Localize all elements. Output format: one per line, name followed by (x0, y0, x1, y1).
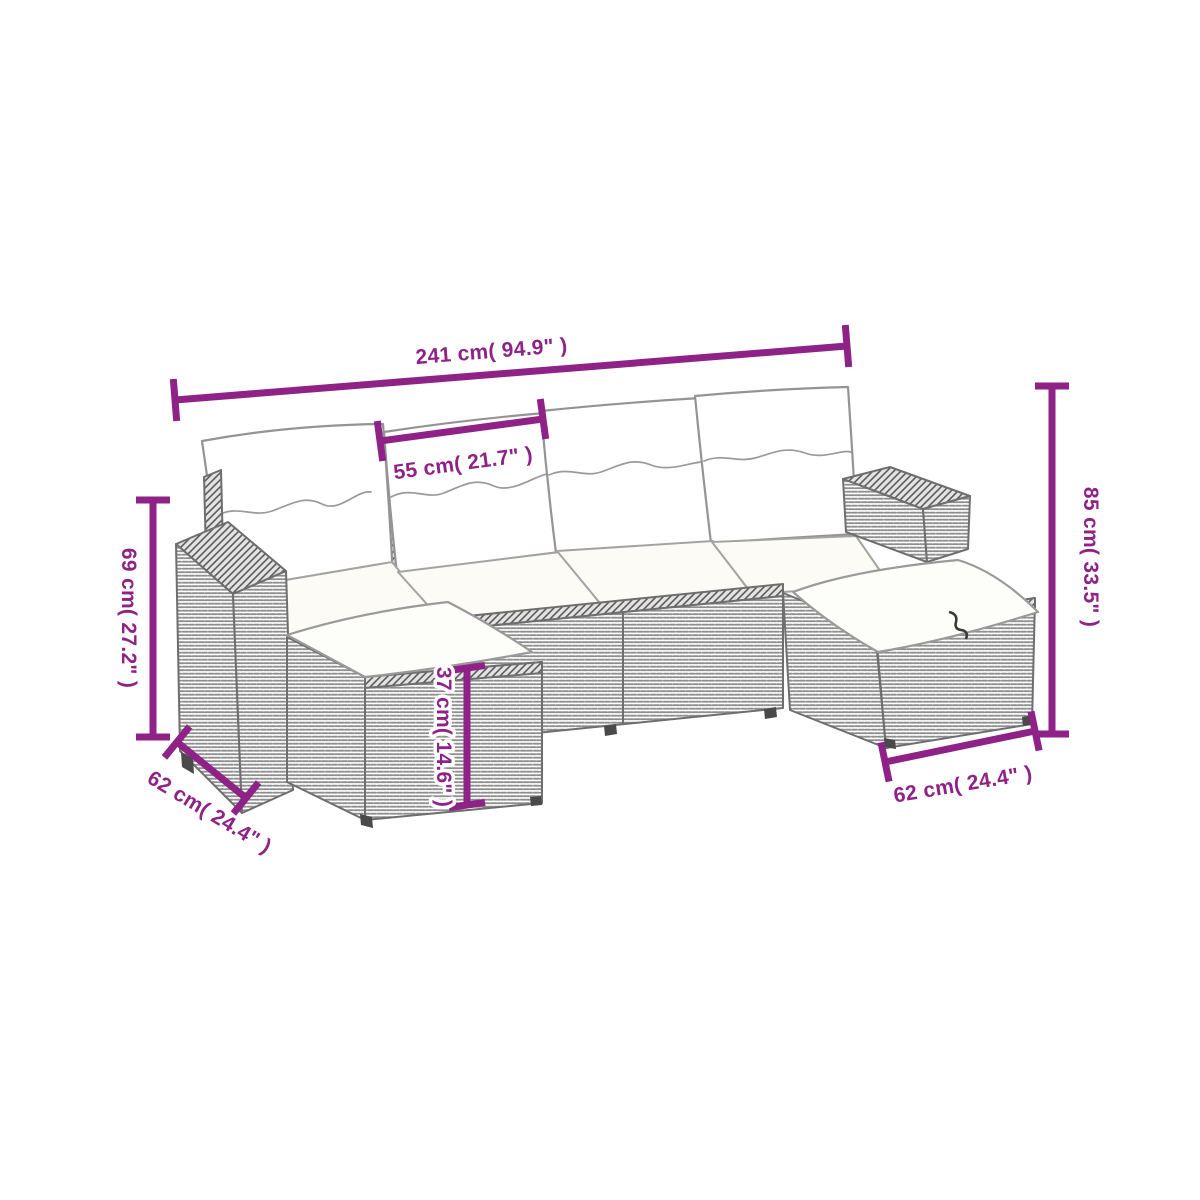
dimension-overall-height (1035, 386, 1069, 734)
sofa-foot (604, 724, 617, 736)
product-dimension-diagram: 241 cm( 94.9" ) 55 cm( 21.7" ) 69 cm( 27… (0, 0, 1200, 1200)
dimension-label-overall-height: 85 cm( 33.5" ) (1079, 487, 1102, 627)
left-armrest-front-panel (233, 571, 293, 813)
sofa-foot (764, 707, 777, 719)
left-ottoman (287, 602, 542, 828)
back-pillow-3 (541, 398, 714, 553)
dimension-label-overall-width: 241 cm( 94.9" ) (415, 334, 569, 369)
sofa-illustration (176, 387, 1038, 828)
dimension-label-back-height: 69 cm( 27.2" ) (117, 548, 140, 688)
diagram-canvas: 241 cm( 94.9" ) 55 cm( 21.7" ) 69 cm( 27… (0, 0, 1200, 1200)
right-ottoman (783, 560, 1038, 749)
dimension-label-right-depth: 62 cm( 24.4" ) (892, 762, 1034, 808)
dimension-label-stool-height: 37 cm( 14.6" ) (432, 667, 455, 807)
ottoman-foot (530, 796, 542, 806)
back-pillow-4 (695, 387, 857, 543)
dimension-back-height (136, 500, 170, 737)
